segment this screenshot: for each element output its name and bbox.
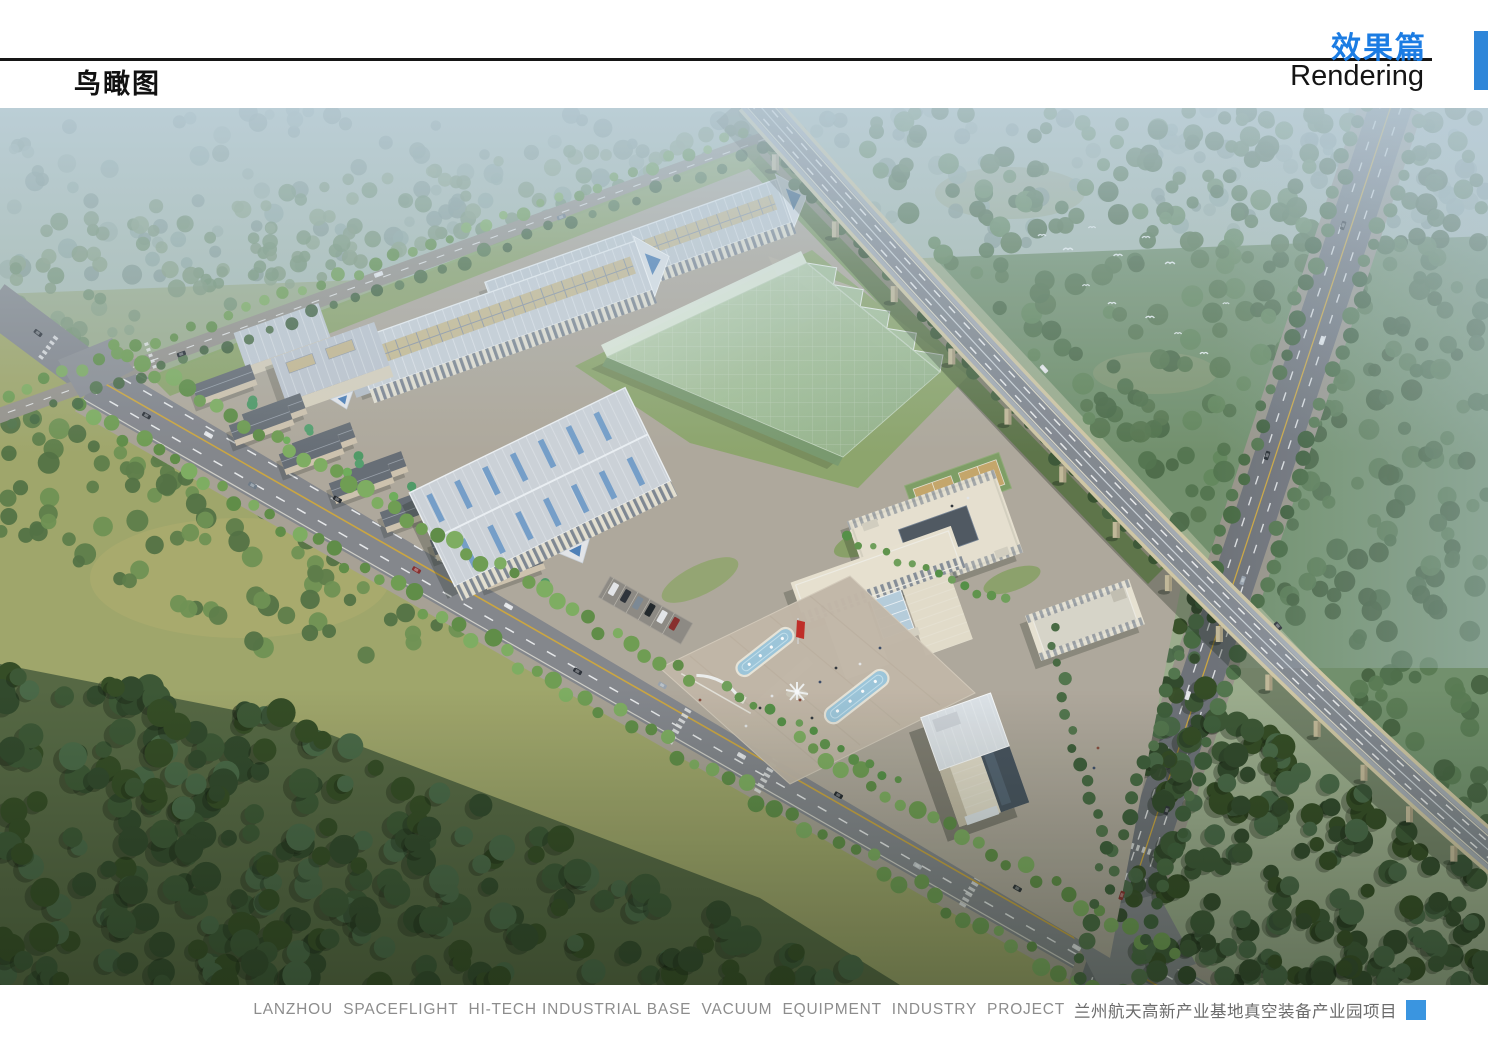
caption-marker bbox=[1406, 1000, 1426, 1020]
aerial-rendering bbox=[0, 108, 1488, 985]
section-title-en: Rendering bbox=[1290, 60, 1424, 93]
caption-cn: 兰州航天高新产业基地真空装备产业园项目 bbox=[1074, 998, 1397, 1022]
presentation-page: 鸟瞰图 效果篇 Rendering bbox=[0, 0, 1488, 1052]
page-footer: LANZHOU SPACEFLIGHT HI-TECH INDUSTRIAL B… bbox=[0, 998, 1426, 1022]
aerial-rendering-canvas bbox=[0, 108, 1488, 985]
page-title: 鸟瞰图 bbox=[74, 62, 161, 101]
header-rule bbox=[0, 58, 1432, 61]
color-cast bbox=[0, 108, 1488, 985]
section-accent-bar bbox=[1474, 31, 1488, 90]
caption-en: LANZHOU SPACEFLIGHT HI-TECH INDUSTRIAL B… bbox=[253, 1001, 1065, 1019]
atmosphere-overlays bbox=[0, 108, 1488, 985]
